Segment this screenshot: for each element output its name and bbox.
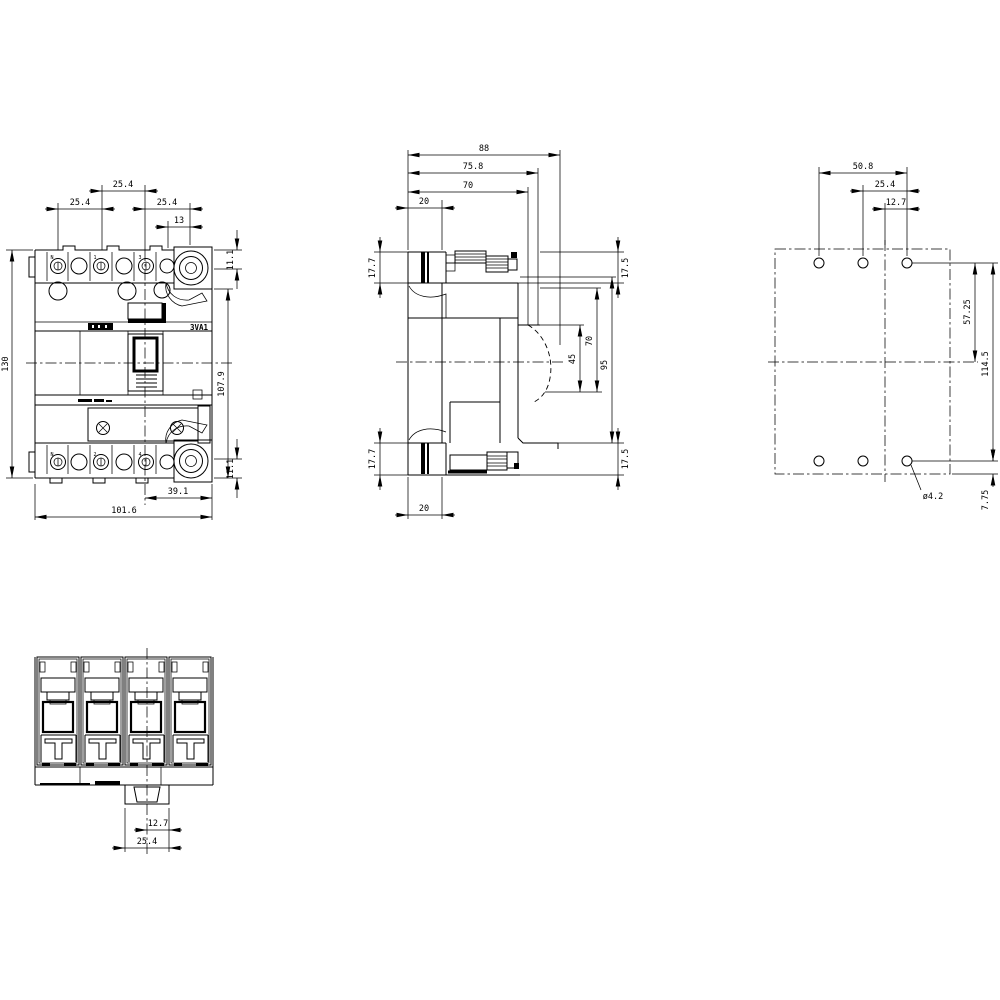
dim-front-overall-height: 130 [1, 356, 11, 371]
dim-front-face-height: 107.9 [217, 371, 227, 397]
dim-front-rotary-height-bottom: 11.1 [226, 459, 236, 479]
pole-module [37, 657, 79, 766]
side-view: 88 75.8 70 20 17.7 17.7 [368, 144, 631, 519]
dim-side-front-depth: 70 [463, 181, 473, 191]
dim-side-terminal-depth-bottom: 20 [419, 504, 429, 514]
dim-side-terminal-depth-top: 20 [419, 197, 429, 207]
pole-marker-bottom-n: N [50, 452, 53, 458]
dim-rear-hole-row-height: 114.5 [981, 351, 991, 377]
product-type-label: 3VA1 [190, 323, 209, 332]
pole-marker-top-1: 1 [93, 255, 96, 261]
bottom-pole-modules [37, 657, 211, 766]
bottom-base [35, 657, 213, 785]
dim-front-bottom-offset: 39.1 [168, 487, 188, 497]
front-rotary-operator-bottom [166, 420, 212, 482]
pole-marker-top-3: 3 [138, 255, 141, 261]
dim-side-terminal-height-bottom: 17.7 [368, 449, 378, 469]
front-top-terminal-row: N 1 3 [35, 252, 174, 283]
dim-rear-hole-span-inner: 25.4 [875, 180, 895, 190]
dim-side-step-height-top: 17.5 [621, 258, 631, 278]
pole-module [169, 657, 211, 766]
dim-front-pitch-top: 25.4 [113, 180, 133, 190]
mounting-plate-outline [775, 249, 950, 474]
dim-side-escutcheon-depth: 75.8 [463, 162, 483, 172]
dim-front-pitch-right: 25.4 [157, 198, 177, 208]
rating-label [88, 323, 113, 330]
dim-rear-hole-span-half: 12.7 [886, 198, 906, 208]
dim-bottom-tab-half-width: 12.7 [148, 819, 168, 829]
dim-front-overall-width: 101.6 [111, 506, 137, 516]
rear-dimensions: 50.8 25.4 12.7 57.25 114.5 7.75 ø4.2 [819, 162, 998, 510]
dim-side-handle-depth: 45 [568, 354, 578, 364]
dim-side-step-height-bottom: 17.5 [621, 449, 631, 469]
front-mid-section [26, 331, 234, 405]
dim-side-terminal-height-top: 17.7 [368, 258, 378, 278]
circuit-breaker-dimension-drawing: N 1 3 3VA1 [0, 0, 1000, 1000]
dim-side-front-height: 95 [600, 360, 610, 370]
dim-rear-upper-hole-height: 57.25 [963, 299, 973, 325]
dim-rear-hole-diameter: ø4.2 [923, 492, 943, 502]
pole-module [125, 657, 167, 766]
dim-rear-hole-span-outer: 50.8 [853, 162, 873, 172]
front-rotary-operator-top [166, 247, 212, 306]
dim-bottom-tab-width: 25.4 [137, 837, 157, 847]
pole-marker-top-n: N [50, 255, 53, 261]
front-accessory-cover [78, 399, 210, 443]
dim-front-rotary-offset: 13 [174, 216, 184, 226]
front-view: N 1 3 3VA1 [1, 180, 242, 520]
front-bottom-terminal-row: N 2 4 [35, 443, 174, 483]
pole-module [81, 657, 123, 766]
dim-side-cover-depth: 70 [585, 336, 595, 346]
rear-drilling-view: 50.8 25.4 12.7 57.25 114.5 7.75 ø4.2 [768, 162, 998, 510]
side-bottom-terminal [408, 429, 520, 475]
pole-marker-bottom-2: 2 [93, 452, 96, 458]
side-body-outline [396, 251, 566, 475]
dim-front-rotary-height-top: 11.1 [226, 250, 236, 270]
handle-profile-dashed [528, 325, 551, 402]
pole-marker-bottom-4: 4 [138, 452, 141, 458]
bottom-view: 12.7 25.4 [35, 648, 213, 856]
dim-rear-lower-hole-offset: 7.75 [981, 490, 991, 510]
dim-side-overall-depth: 88 [479, 144, 489, 154]
dimension-drawing-page: N 1 3 3VA1 [0, 0, 1000, 1000]
small-marking [78, 399, 92, 402]
dim-front-pitch-left: 25.4 [70, 198, 90, 208]
